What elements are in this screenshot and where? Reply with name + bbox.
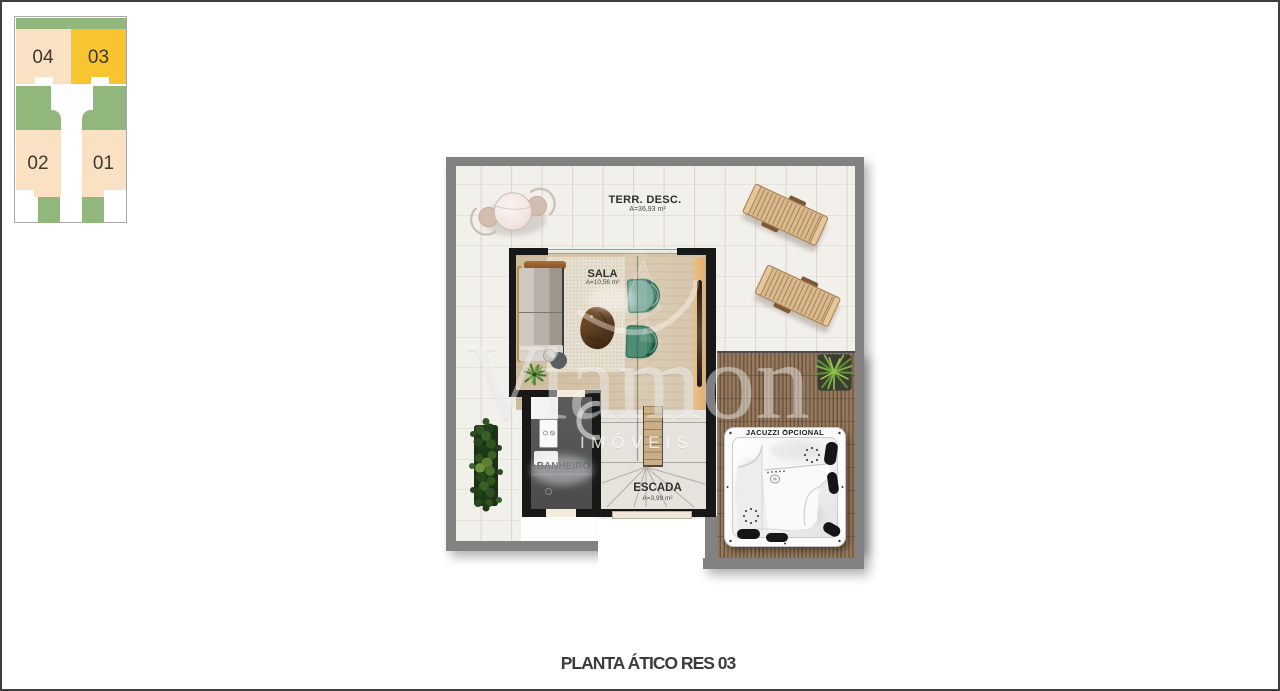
svg-text:Viamon: Viamon (466, 323, 810, 442)
